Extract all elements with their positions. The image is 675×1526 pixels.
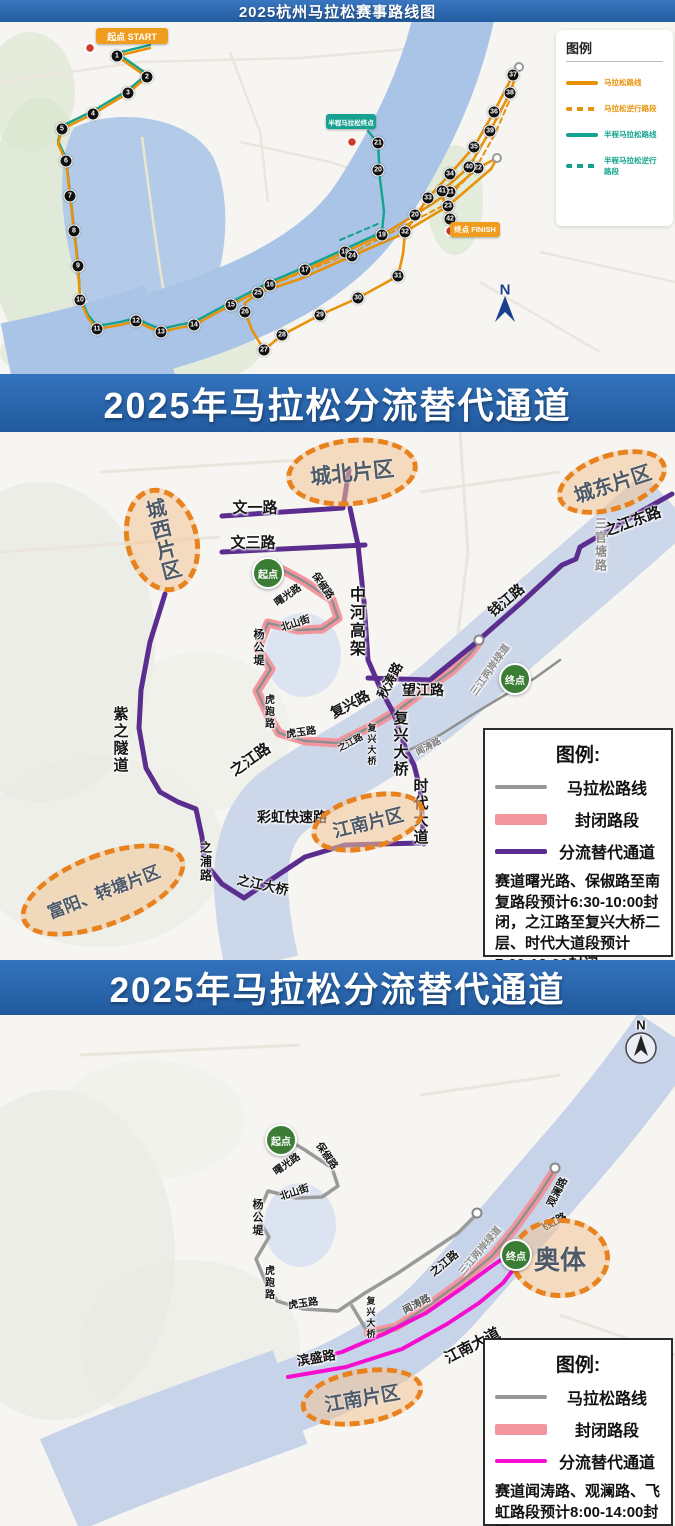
- race-route-map: N123456789101112131415161718192021222324…: [0, 22, 675, 374]
- district-label: 富阳、转塘片区: [43, 857, 163, 923]
- road-label: 闻涛路: [413, 734, 443, 758]
- diversion-map-1: 文一路文三路中河高架曙光路保俶路北山街杨公堤秋涛路望江路钱江路之江东路三官塘路复…: [0, 432, 675, 960]
- road-label: 北山街: [277, 1179, 310, 1203]
- legend-item: 封闭路段: [495, 1417, 661, 1441]
- km-marker: 25: [252, 287, 265, 300]
- km-marker: 9: [72, 260, 85, 273]
- km-marker: 29: [314, 309, 327, 322]
- legend-title: 图例:: [495, 1350, 661, 1377]
- legend-item-label: 半程马拉松路线: [604, 129, 657, 140]
- km-marker: 39: [484, 125, 497, 138]
- legend-title: 图例:: [495, 740, 661, 767]
- district-label: 江南片区: [322, 1377, 402, 1417]
- legend-items: 马拉松路线封闭路段分流替代通道: [495, 1385, 661, 1473]
- district-label: 江南片区: [330, 801, 406, 844]
- district-label: 城西片区: [138, 496, 186, 585]
- km-marker: 37: [507, 69, 520, 82]
- km-marker: 36: [488, 106, 501, 119]
- finish-point-badge: 终点: [499, 663, 531, 695]
- legend-line-sample: [495, 1459, 547, 1463]
- km-marker: 21: [372, 137, 385, 150]
- km-marker: 16: [264, 279, 277, 292]
- legend-line-sample: [495, 1424, 547, 1435]
- legend-item: 封闭路段: [495, 807, 661, 831]
- road-label: 之浦路: [198, 841, 215, 883]
- km-marker: 1: [111, 50, 124, 63]
- km-marker: 13: [155, 326, 168, 339]
- road-label: 三江两岸绿道: [454, 1222, 504, 1278]
- km-marker: 33: [422, 192, 435, 205]
- road-label: 文一路: [232, 497, 277, 518]
- road-label: 保俶路: [309, 568, 338, 601]
- legend-item: 半程马拉松逆行路段: [566, 155, 663, 177]
- legend-line-sample: [566, 81, 598, 85]
- legend-line-sample: [495, 814, 547, 825]
- km-marker: 7: [64, 190, 77, 203]
- km-marker: 6: [60, 155, 73, 168]
- road-label: 文三路: [230, 532, 275, 553]
- start-point-badge: 起点: [252, 557, 284, 589]
- legend-item: 马拉松路线: [495, 1385, 661, 1409]
- half-finish-badge: 半程马拉松终点: [326, 114, 376, 129]
- marathon-poster: 2025杭州马拉松赛事路线图: [0, 0, 675, 1526]
- legend-item-label: 分流替代通道: [553, 839, 661, 863]
- legend-items: 马拉松路线马拉松逆行路段半程马拉松路线半程马拉松逆行路段: [566, 77, 663, 177]
- km-marker: 34: [444, 168, 457, 181]
- finish-badge: 终点 FINISH: [450, 222, 500, 237]
- km-marker: 30: [352, 292, 365, 305]
- legend-line-sample: [495, 1395, 547, 1399]
- page-title: 2025杭州马拉松赛事路线图: [0, 0, 675, 22]
- km-marker: 35: [468, 141, 481, 154]
- km-marker: 27: [258, 344, 271, 357]
- km-marker: 41: [436, 185, 449, 198]
- km-marker: 12: [130, 315, 143, 328]
- legend-item-label: 分流替代通道: [553, 1449, 661, 1473]
- km-marker: 20: [372, 164, 385, 177]
- legend-line-sample: [566, 164, 598, 168]
- road-label: 复兴大桥: [366, 723, 379, 767]
- legend-item-label: 封闭路段: [553, 807, 661, 831]
- road-label: 杨公堤: [250, 629, 266, 668]
- km-marker: 11: [91, 323, 104, 336]
- road-label: 虎玉路: [285, 721, 317, 740]
- race-route-map-section: 2025杭州马拉松赛事路线图: [0, 0, 675, 374]
- road-label: 复兴路: [327, 685, 373, 722]
- km-marker: 10: [74, 294, 87, 307]
- legend-item: 半程马拉松路线: [566, 129, 663, 140]
- district-area: 江南片区: [296, 1359, 428, 1436]
- road-label: 虎玉路: [287, 1292, 319, 1311]
- legend-item-label: 马拉松逆行路段: [604, 103, 657, 114]
- km-marker: 19: [376, 229, 389, 242]
- road-label: 望江路: [402, 680, 444, 700]
- road-label: 观澜路: [543, 1175, 571, 1210]
- km-marker: 38: [504, 87, 517, 100]
- road-label: 紫之隧道: [110, 706, 131, 774]
- km-marker: 32: [399, 226, 412, 239]
- km-marker: 2: [141, 71, 154, 84]
- race-map-legend: 图例 马拉松路线马拉松逆行路段半程马拉松路线半程马拉松逆行路段: [556, 30, 673, 226]
- diversion-map-1-title: 2025年马拉松分流替代通道: [0, 374, 675, 432]
- road-label: 之江路: [335, 730, 365, 754]
- finish-point-badge: 终点: [500, 1239, 532, 1271]
- road-label: 三官塘路: [593, 517, 610, 573]
- road-label: N: [636, 1018, 645, 1033]
- road-label: 之江路: [426, 1246, 462, 1279]
- km-marker: 26: [239, 306, 252, 319]
- km-marker: 4: [87, 108, 100, 121]
- legend-items: 马拉松路线封闭路段分流替代通道: [495, 775, 661, 863]
- road-label: 闻涛路: [399, 1289, 433, 1316]
- km-marker: 28: [276, 329, 289, 342]
- legend-line-sample: [566, 107, 598, 111]
- road-label: N: [500, 282, 511, 299]
- diversion-map-2-section: 2025年马拉松分流替代通道: [0, 960, 675, 1526]
- district-label: 城东片区: [569, 456, 654, 508]
- legend-item-label: 马拉松路线: [553, 1385, 661, 1409]
- km-marker: 14: [188, 319, 201, 332]
- km-marker: 40: [463, 161, 476, 174]
- diversion-map-2-title: 2025年马拉松分流替代通道: [0, 960, 675, 1015]
- km-marker: 5: [56, 123, 69, 136]
- legend-divider: [566, 61, 663, 62]
- road-label: 钱江路: [483, 579, 528, 621]
- diversion-legend-2: 图例: 马拉松路线封闭路段分流替代通道 赛道闻涛路、观澜路、飞虹路段预计8:00…: [483, 1338, 673, 1526]
- legend-item: 马拉松逆行路段: [566, 103, 663, 114]
- legend-line-sample: [495, 849, 547, 854]
- road-label: 之江大桥: [236, 869, 291, 898]
- road-label: 保俶路: [313, 1138, 342, 1171]
- km-marker: 31: [392, 270, 405, 283]
- legend-line-sample: [566, 133, 598, 137]
- legend-item-label: 马拉松路线: [604, 77, 642, 88]
- road-label: 复兴大桥: [365, 1296, 378, 1340]
- km-marker: 17: [299, 264, 312, 277]
- road-label: 虎跑路: [261, 694, 276, 730]
- km-marker: 23: [442, 200, 455, 213]
- district-area: 富阳、转塘片区: [9, 824, 198, 955]
- legend-item: 分流替代通道: [495, 1449, 661, 1473]
- km-marker: 15: [225, 299, 238, 312]
- road-label: 杨公堤: [249, 1199, 265, 1238]
- legend-title: 图例: [566, 38, 663, 57]
- district-label: 城北片区: [309, 453, 396, 492]
- road-label: 中河高架: [343, 586, 367, 658]
- km-marker: 20: [409, 209, 422, 222]
- closure-note: 赛道曙光路、保俶路至南复路段预计6:30-10:00封闭，之江路至复兴大桥二层、…: [495, 872, 661, 960]
- road-label: 之江路: [226, 737, 275, 780]
- km-marker: 8: [68, 225, 81, 238]
- road-label: 滨盛路: [295, 1344, 337, 1369]
- legend-item-label: 封闭路段: [553, 1417, 661, 1441]
- diversion-map-1-section: 2025年马拉松分流替代通道: [0, 374, 675, 960]
- road-label: 虎跑路: [261, 1265, 276, 1301]
- diversion-map-2: 曙光路保俶路北山街杨公堤虎跑路虎玉路之江路三江两岸绿道闻涛路复兴大桥观澜路飞虹路…: [0, 1015, 675, 1526]
- diversion-legend-1: 图例: 马拉松路线封闭路段分流替代通道 赛道曙光路、保俶路至南复路段预计6:30…: [483, 728, 673, 957]
- legend-item-label: 马拉松路线: [553, 775, 661, 799]
- km-marker: 3: [122, 87, 135, 100]
- start-badge: 起点 START: [96, 28, 168, 44]
- road-label: 复兴大桥: [390, 710, 411, 778]
- legend-item: 马拉松路线: [566, 77, 663, 88]
- legend-item-label: 半程马拉松逆行路段: [604, 155, 663, 177]
- start-point-badge: 起点: [265, 1124, 297, 1156]
- district-area: 城西片区: [113, 480, 210, 601]
- district-label: 奥体: [534, 1240, 586, 1277]
- closure-note: 赛道闻涛路、观澜路、飞虹路段预计8:00-14:00封闭。: [495, 1482, 661, 1526]
- road-label: 北山街: [278, 610, 311, 634]
- legend-item: 马拉松路线: [495, 775, 661, 799]
- km-marker: 24: [346, 250, 359, 263]
- legend-line-sample: [495, 785, 547, 789]
- legend-item: 分流替代通道: [495, 839, 661, 863]
- district-area: 城北片区: [283, 431, 421, 512]
